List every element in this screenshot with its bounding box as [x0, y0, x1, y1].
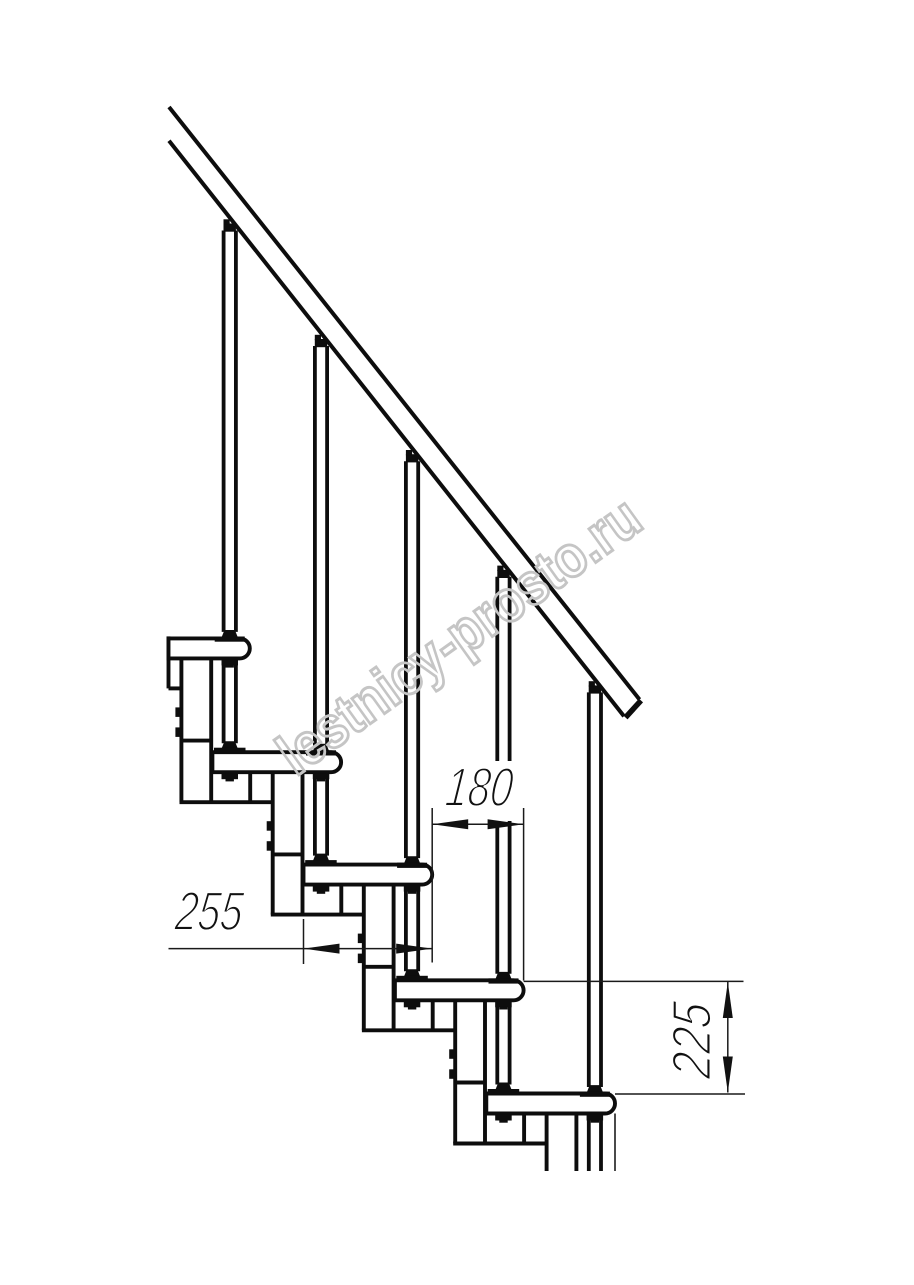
svg-text:225: 225	[660, 998, 722, 1082]
svg-text:255: 255	[172, 881, 246, 942]
svg-text:180: 180	[443, 757, 517, 818]
